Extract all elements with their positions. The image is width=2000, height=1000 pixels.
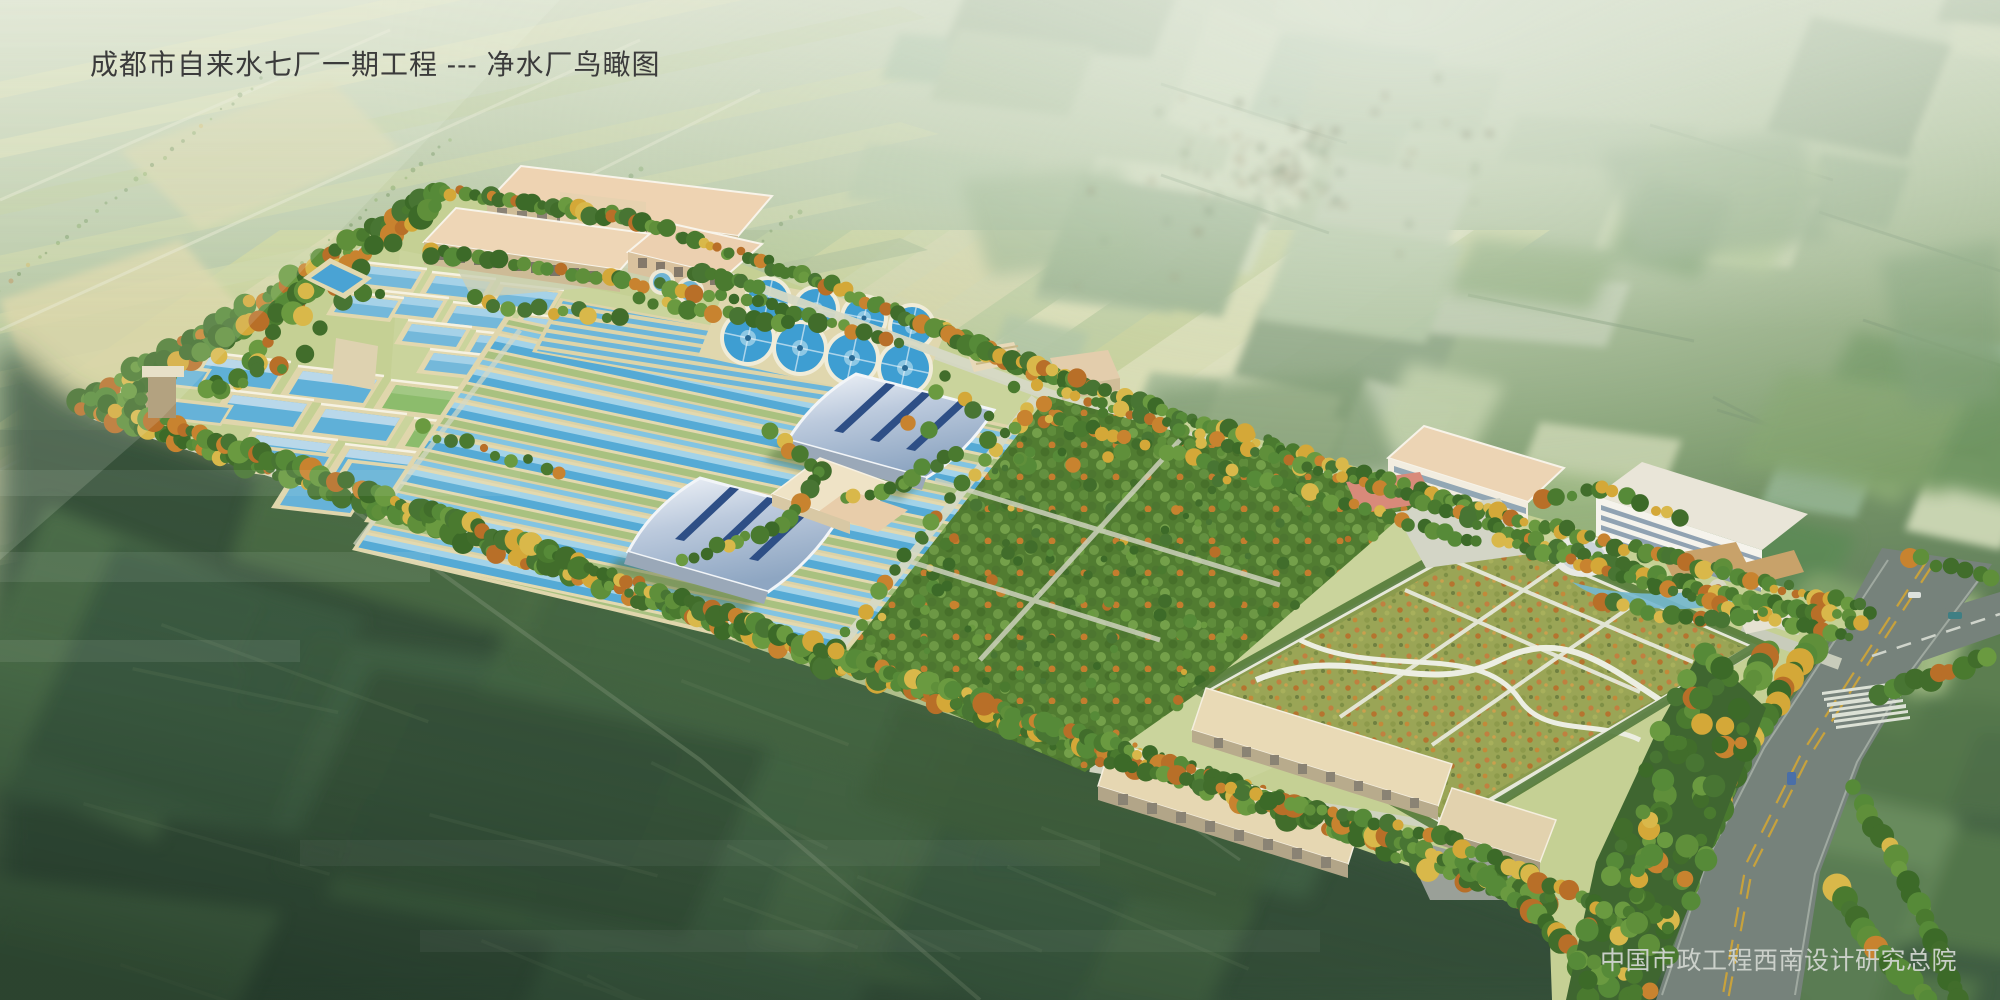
svg-text:中国市政工程西南设计研究总院: 中国市政工程西南设计研究总院 [1600, 947, 1957, 975]
svg-text:成都市自来水七厂一期工程 --- 净水厂鸟瞰图: 成都市自来水七厂一期工程 --- 净水厂鸟瞰图 [90, 49, 661, 80]
